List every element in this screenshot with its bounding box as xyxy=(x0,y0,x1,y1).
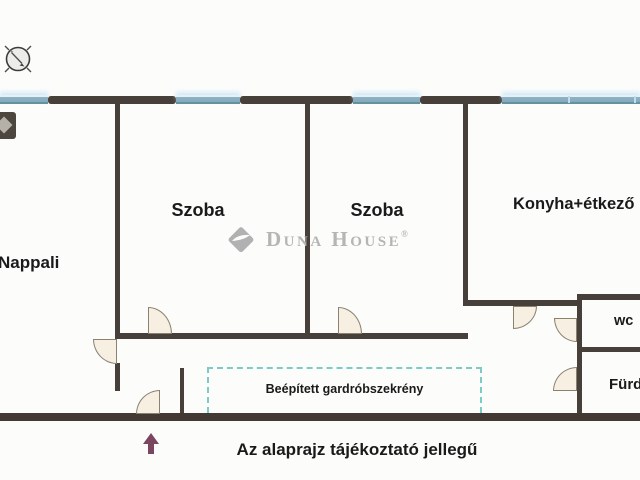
door-arc-nappali xyxy=(93,339,117,364)
entrance-arrow-icon xyxy=(142,432,160,456)
wall-top xyxy=(240,96,353,104)
wall-nappali-lower xyxy=(115,363,120,391)
door-arc-entrance xyxy=(136,390,160,414)
window-mullion xyxy=(568,96,570,103)
wall-szoba1-szoba2 xyxy=(305,104,310,333)
room-label-konyha: Konyha+étkező xyxy=(513,195,635,214)
wall-hall-wc-furdo xyxy=(577,300,582,413)
window-segment xyxy=(502,95,640,104)
window-mullion xyxy=(634,96,636,103)
room-label-szoba1: Szoba xyxy=(150,200,246,221)
window-segment xyxy=(176,95,240,104)
wall-top xyxy=(420,96,502,104)
wall-hall-stub xyxy=(180,368,184,413)
watermark-brand: Duna House® xyxy=(266,227,408,252)
room-label-szoba2: Szoba xyxy=(329,200,425,221)
window-segment xyxy=(0,95,48,104)
room-label-nappali: Nappali xyxy=(0,253,59,273)
window-segment xyxy=(353,95,420,104)
wall-wc-top xyxy=(577,294,640,300)
disclaimer-text: Az alaprajz tájékoztató jellegű xyxy=(177,440,537,460)
door-arc-konyha xyxy=(513,306,537,329)
wall-nappali-szoba1 xyxy=(115,104,120,333)
duna-house-logo-icon xyxy=(224,222,258,256)
compass-icon xyxy=(1,42,35,76)
watermark: Duna House® xyxy=(224,222,408,256)
door-arc-szoba2 xyxy=(338,307,362,334)
registered-mark: ® xyxy=(401,229,408,239)
room-label-wc: wc xyxy=(614,313,633,329)
room-label-furdo: Fürdő xyxy=(609,376,640,393)
wardrobe-label: Beépített gardróbszekrény xyxy=(207,382,482,396)
diamond-shape xyxy=(0,117,12,134)
duna-diamond-icon xyxy=(0,112,16,139)
wall-wc-furdo-divider xyxy=(582,347,640,352)
door-arc-wc xyxy=(554,318,577,342)
door-arc-furdo xyxy=(553,367,577,391)
door-arc-szoba1 xyxy=(148,307,172,334)
wall-szoba2-konyha xyxy=(463,104,468,300)
wall-bottom xyxy=(0,413,640,421)
wall-top xyxy=(48,96,176,104)
floor-plan: Duna House® Nappali Szoba Szoba Konyha+é… xyxy=(0,0,640,480)
